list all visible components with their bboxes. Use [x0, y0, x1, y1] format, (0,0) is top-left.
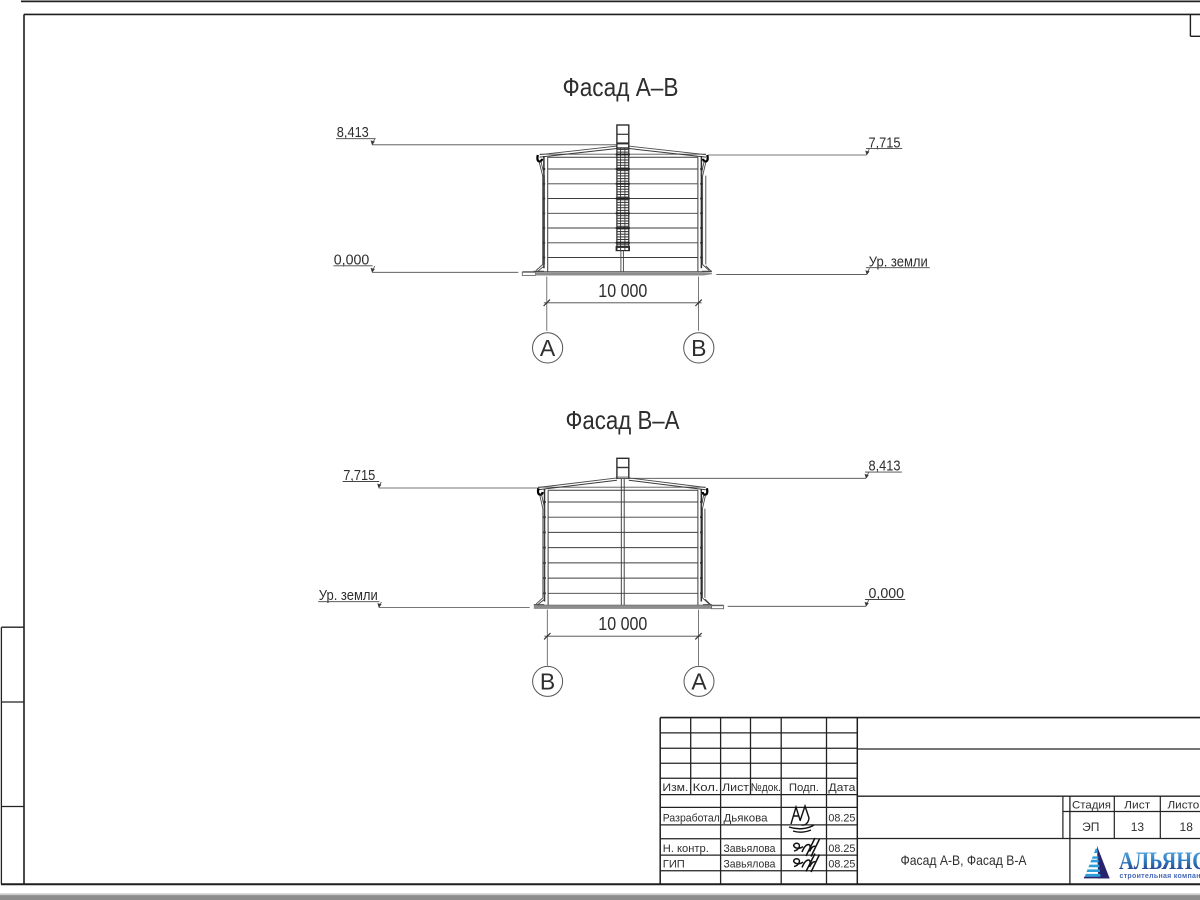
svg-text:Листов: Листов: [1168, 800, 1200, 812]
svg-text:Н. контр.: Н. контр.: [663, 843, 709, 855]
svg-text:Завьялова: Завьялова: [724, 858, 777, 870]
svg-text:Дата: Дата: [828, 782, 856, 794]
svg-text:Фасад В–А: Фасад В–А: [566, 405, 681, 435]
svg-text:Изм.: Изм.: [662, 782, 688, 794]
svg-text:строительная компания: строительная компания: [1120, 873, 1200, 880]
svg-text:Завьялова: Завьялова: [724, 843, 777, 855]
svg-text:10 000: 10 000: [598, 281, 647, 301]
svg-text:В: В: [540, 669, 555, 695]
svg-text:Фасад А-В, Фасад В-А: Фасад А-В, Фасад В-А: [901, 853, 1028, 868]
svg-text:18: 18: [1180, 820, 1194, 834]
svg-text:А: А: [691, 669, 707, 695]
svg-text:Стадия: Стадия: [1072, 800, 1111, 812]
svg-text:ЭП: ЭП: [1082, 820, 1099, 834]
svg-text:Дьякова: Дьякова: [724, 812, 769, 824]
svg-text:08.25: 08.25: [828, 843, 855, 855]
svg-text:ГИП: ГИП: [663, 858, 685, 870]
svg-text:А: А: [540, 335, 556, 361]
svg-text:10 000: 10 000: [598, 614, 647, 634]
svg-text:Разработал: Разработал: [663, 812, 720, 824]
svg-text:Подп.: Подп.: [789, 782, 819, 794]
svg-text:АЛЬЯНС: АЛЬЯНС: [1119, 848, 1200, 875]
svg-text:№док.: №док.: [751, 782, 781, 794]
svg-text:Лист: Лист: [1124, 800, 1150, 812]
svg-text:Фасад А–В: Фасад А–В: [563, 72, 679, 102]
svg-text:08.25: 08.25: [828, 858, 855, 870]
svg-text:Кол.: Кол.: [693, 782, 719, 794]
svg-text:13: 13: [1131, 820, 1145, 834]
svg-text:08.25: 08.25: [828, 812, 855, 824]
svg-text:В: В: [691, 335, 706, 361]
svg-text:Лист: Лист: [722, 782, 749, 794]
